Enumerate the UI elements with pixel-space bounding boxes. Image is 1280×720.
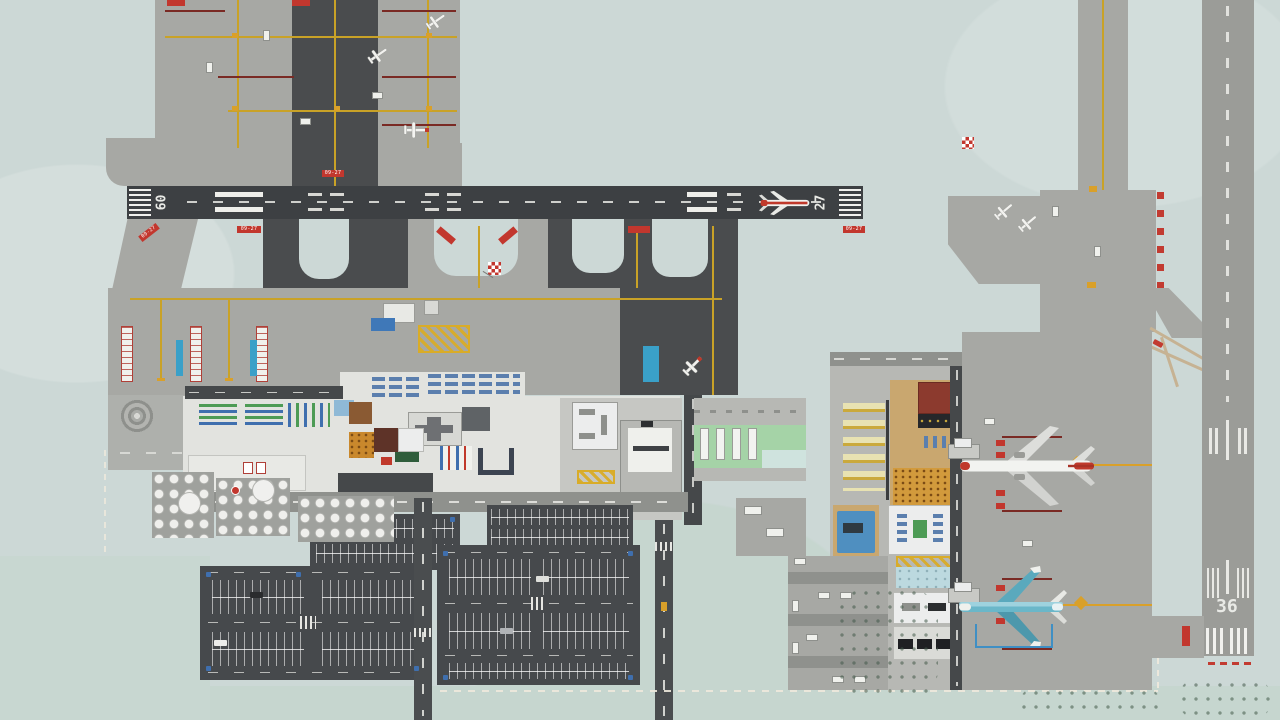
stand-marker <box>426 106 432 111</box>
taxi-centerline <box>712 226 714 290</box>
fuel-tank-large[interactable] <box>252 479 275 502</box>
tdz-bar <box>1247 568 1249 598</box>
tdz-bar <box>1207 568 1209 598</box>
crosswalk <box>414 628 432 637</box>
accessible-spot <box>414 666 419 671</box>
equipment-box[interactable] <box>424 300 439 315</box>
rt-staff-room[interactable] <box>833 505 879 559</box>
airliner-red-tail[interactable] <box>956 418 1096 514</box>
alert-dot[interactable] <box>231 486 240 495</box>
room-slate[interactable] <box>462 407 490 431</box>
staff-desk <box>843 523 863 533</box>
tdz-bar <box>330 208 344 211</box>
taxi-centerline <box>165 36 457 38</box>
airliner-shape <box>759 191 809 215</box>
service-corridor-dark <box>338 473 433 492</box>
taxi-centerline <box>636 226 638 290</box>
arch-cutout <box>652 219 708 277</box>
parking-bays <box>322 632 414 666</box>
road-marking <box>189 392 339 393</box>
parking-lot-big-east[interactable] <box>437 545 640 685</box>
taxi-centerline <box>478 226 480 290</box>
stand-lead-line <box>382 10 456 12</box>
boundary-fence-dashed <box>104 450 106 554</box>
stand-lead-line <box>165 10 225 12</box>
accessible-spot <box>628 675 633 680</box>
parking-bays <box>316 544 454 563</box>
tdz-bar <box>1237 568 1239 598</box>
lounge-table <box>913 520 927 538</box>
lane-marking <box>445 552 633 553</box>
no-park-hatch <box>418 325 470 353</box>
hold-marker <box>1089 186 1097 192</box>
parking-bays <box>449 613 531 649</box>
tdz-bar <box>1209 428 1212 454</box>
arch-cutout <box>572 219 624 273</box>
waiting-seats <box>372 377 420 398</box>
approach-light <box>1208 662 1215 665</box>
shop-white[interactable] <box>398 428 424 452</box>
rt-wall <box>886 400 889 500</box>
stand-marker <box>232 33 238 38</box>
runway-centerline <box>187 201 837 203</box>
machine-black <box>936 639 951 649</box>
stand-marker <box>232 106 238 111</box>
lounge-seats-u <box>478 448 514 475</box>
accessible-spot <box>443 675 448 680</box>
parking-bays <box>449 559 531 595</box>
rt-lounge[interactable] <box>888 505 956 555</box>
tdz-bar <box>308 193 322 196</box>
road-marking <box>663 524 665 716</box>
rt-access-road <box>830 352 962 366</box>
tdz-bar <box>447 193 461 196</box>
aiming-bar <box>687 207 717 212</box>
tdz-bar <box>727 193 741 196</box>
parking-bays <box>543 613 629 649</box>
kiosk[interactable] <box>732 428 741 460</box>
equipment-blue[interactable] <box>371 318 395 331</box>
ground-vehicle[interactable] <box>372 92 383 99</box>
threshold-marking <box>129 189 151 216</box>
runway-number-09: 09 <box>151 195 166 211</box>
parking-bays <box>212 632 304 666</box>
parking-bays <box>491 509 629 525</box>
round-storage-tank[interactable] <box>120 399 154 433</box>
shop-brown[interactable] <box>349 402 372 424</box>
accessible-spot <box>206 572 211 577</box>
tdz-bar <box>1212 568 1214 598</box>
runway-edge-markers <box>1157 192 1164 292</box>
tdz-bar <box>1238 428 1241 454</box>
tdz-bar <box>1244 428 1247 454</box>
hold-marker <box>1087 282 1096 288</box>
fuel-pipe <box>1051 624 1053 648</box>
airliner-on-runway[interactable] <box>758 187 814 219</box>
accessible-spot <box>628 551 633 556</box>
taxi-centerline <box>237 0 239 148</box>
ground-vehicle[interactable] <box>984 418 995 425</box>
tile-room <box>762 450 806 469</box>
lounge-seats <box>897 514 907 544</box>
signal-square-checker <box>488 262 501 275</box>
kiosk[interactable] <box>700 428 709 460</box>
airport-map-viewport[interactable]: 09 27 <box>0 0 1280 720</box>
lane-marking <box>445 655 633 656</box>
truck[interactable] <box>744 506 762 515</box>
terminal-access-road <box>185 386 343 399</box>
approach-light <box>1244 662 1251 665</box>
lounge-seats <box>933 514 943 544</box>
aiming-bar <box>215 207 263 212</box>
road-marking <box>422 502 424 716</box>
service-van[interactable] <box>806 634 818 641</box>
taxiway-sign <box>1182 626 1190 646</box>
runway-centerline <box>1226 6 1229 402</box>
checkin-desks-vertical[interactable] <box>288 403 330 427</box>
accessible-spot <box>206 666 211 671</box>
truck[interactable] <box>766 528 784 537</box>
tdz-bar <box>330 193 344 196</box>
dirt-path <box>1144 343 1206 373</box>
taxiway-sign <box>628 226 650 233</box>
runway-number-36: 36 <box>1216 596 1238 617</box>
sign-label: 09-27 <box>325 171 342 176</box>
tdz-bar <box>1217 568 1219 598</box>
stand-lead-line <box>382 76 456 78</box>
machine <box>579 433 595 439</box>
taxi-centerline <box>712 288 714 395</box>
crosswalk <box>531 597 545 610</box>
arch-cutout <box>434 219 518 276</box>
exit-marker <box>381 457 392 465</box>
sign-label: 09-27 <box>241 227 258 232</box>
car[interactable] <box>500 628 513 634</box>
car[interactable] <box>536 576 549 582</box>
kiosk[interactable] <box>716 428 725 460</box>
boundary-fence-dashed <box>1157 658 1159 690</box>
ground-vehicle[interactable] <box>300 118 311 125</box>
lane-marking <box>208 572 420 573</box>
ga-plane-shape <box>404 122 429 138</box>
accessible-spot <box>296 572 301 577</box>
taxi-connector-diagonal <box>1152 288 1204 338</box>
ground-vehicle[interactable] <box>263 30 270 41</box>
runway-09-27[interactable]: 09 27 <box>127 186 863 219</box>
car[interactable] <box>214 640 227 646</box>
toilet-stalls <box>256 462 266 474</box>
parking-bays <box>449 663 629 679</box>
kiosk[interactable] <box>748 428 757 460</box>
shrub-field <box>1020 688 1160 718</box>
tdz-bar <box>308 208 322 211</box>
taxi-centerline <box>1102 0 1104 192</box>
baggage-conveyor <box>633 446 669 451</box>
access-road-south <box>414 498 432 720</box>
ground-vehicle[interactable] <box>1022 540 1033 547</box>
centerline-dash <box>1226 420 1229 460</box>
parking-bays <box>491 529 629 545</box>
tdz-bar <box>425 193 439 196</box>
checkin-desks[interactable] <box>199 404 237 428</box>
accessible-spot <box>443 551 448 556</box>
taxi-centerline <box>228 110 457 112</box>
tdz-bar <box>447 208 461 211</box>
stop-bar <box>157 378 165 381</box>
aiming-bar <box>215 192 263 197</box>
service-van[interactable] <box>792 642 799 654</box>
accessible-spot <box>450 517 455 522</box>
fuel-tank-large[interactable] <box>178 492 201 515</box>
ground-vehicle[interactable] <box>1052 206 1059 217</box>
machine <box>579 409 595 415</box>
stand-marker <box>426 33 432 38</box>
stand-walkway <box>121 326 133 382</box>
lane-marking <box>208 672 420 673</box>
rt-security-lanes[interactable] <box>843 403 885 491</box>
room-maroon-shop[interactable] <box>374 428 398 452</box>
tdz-bar <box>1242 568 1244 598</box>
stand-lead-in <box>228 300 230 380</box>
threshold-marking <box>1206 628 1224 654</box>
crosswalk <box>655 542 673 551</box>
ne-taxiway-vertical <box>1078 0 1128 192</box>
fuel-tank-pad[interactable] <box>298 496 394 542</box>
road-marking <box>834 358 958 360</box>
retail-racks <box>440 446 472 470</box>
threshold-marking <box>1230 628 1248 654</box>
arch-cutout <box>299 219 349 279</box>
parking-lot-small-east[interactable] <box>487 505 633 549</box>
crosswalk <box>300 616 316 629</box>
ground-vehicle[interactable] <box>206 62 213 73</box>
service-van[interactable] <box>794 558 806 565</box>
truck-apron <box>736 498 806 556</box>
runway-number-27: 27 <box>813 195 828 211</box>
runway-36[interactable]: 36 <box>1202 0 1254 656</box>
taxiway-sign: 09-27 <box>237 226 261 233</box>
service-van[interactable] <box>818 592 830 599</box>
jet-bridge[interactable] <box>176 340 183 376</box>
tdz-bar <box>425 208 439 211</box>
east-hall-roof <box>694 398 806 426</box>
taxiway-sign: 09-27 <box>322 170 344 177</box>
rt-tile-room <box>896 567 952 588</box>
food-court[interactable] <box>349 432 374 458</box>
door-dark <box>641 421 653 427</box>
no-park-hatch <box>577 470 615 484</box>
approach-light <box>1232 662 1239 665</box>
stop-bar <box>225 378 233 381</box>
tdz-bar <box>1215 428 1218 454</box>
deicing-pad[interactable] <box>643 346 659 382</box>
signal-square-checker <box>962 137 974 149</box>
lot-road <box>788 572 888 584</box>
east-hall-south <box>694 468 806 481</box>
shrub-field <box>1180 680 1270 718</box>
airliner-shape <box>960 426 1095 506</box>
car[interactable] <box>250 592 263 598</box>
centerline-dash <box>1226 560 1229 594</box>
shrub-field <box>838 588 938 700</box>
service-van[interactable] <box>792 600 799 612</box>
plant-room[interactable] <box>572 402 618 450</box>
taxiway-sign <box>292 0 310 6</box>
taxiway-loop-west <box>106 138 168 186</box>
toll-gate[interactable] <box>661 602 667 611</box>
stand-lead-line <box>218 76 294 78</box>
runway36-entry-taxiway <box>1152 616 1204 658</box>
ground-vehicle[interactable] <box>1094 246 1101 257</box>
fuel-pipe <box>975 646 1053 648</box>
parking-bays <box>322 580 414 614</box>
stand-marker <box>334 106 340 111</box>
threshold-marking <box>839 189 861 216</box>
arrivals-board <box>395 452 419 462</box>
taxiway-sign: 09-27 <box>843 226 865 233</box>
aiming-bar <box>687 192 717 197</box>
parking-lot-big-west[interactable] <box>200 566 428 680</box>
ga-aircraft[interactable] <box>402 122 430 138</box>
taxi-centerline <box>334 0 336 186</box>
stand-lead-in <box>160 300 162 380</box>
approach-light <box>1220 662 1227 665</box>
east-apron-dark <box>620 288 738 395</box>
fuel-pipe <box>975 624 977 648</box>
machine <box>601 415 607 435</box>
waiting-seats <box>428 374 520 398</box>
jet-bridge[interactable] <box>250 340 257 376</box>
tdz-bar <box>727 208 741 211</box>
sign-label: 09-27 <box>846 227 863 232</box>
toilet-stalls <box>243 462 253 474</box>
stand-walkway <box>256 326 268 382</box>
taxiway-sign <box>167 0 185 6</box>
grass-patch-left <box>0 556 210 720</box>
parking-bays <box>543 559 629 595</box>
checkin-desks[interactable] <box>245 404 283 428</box>
stand-walkway <box>190 326 202 382</box>
